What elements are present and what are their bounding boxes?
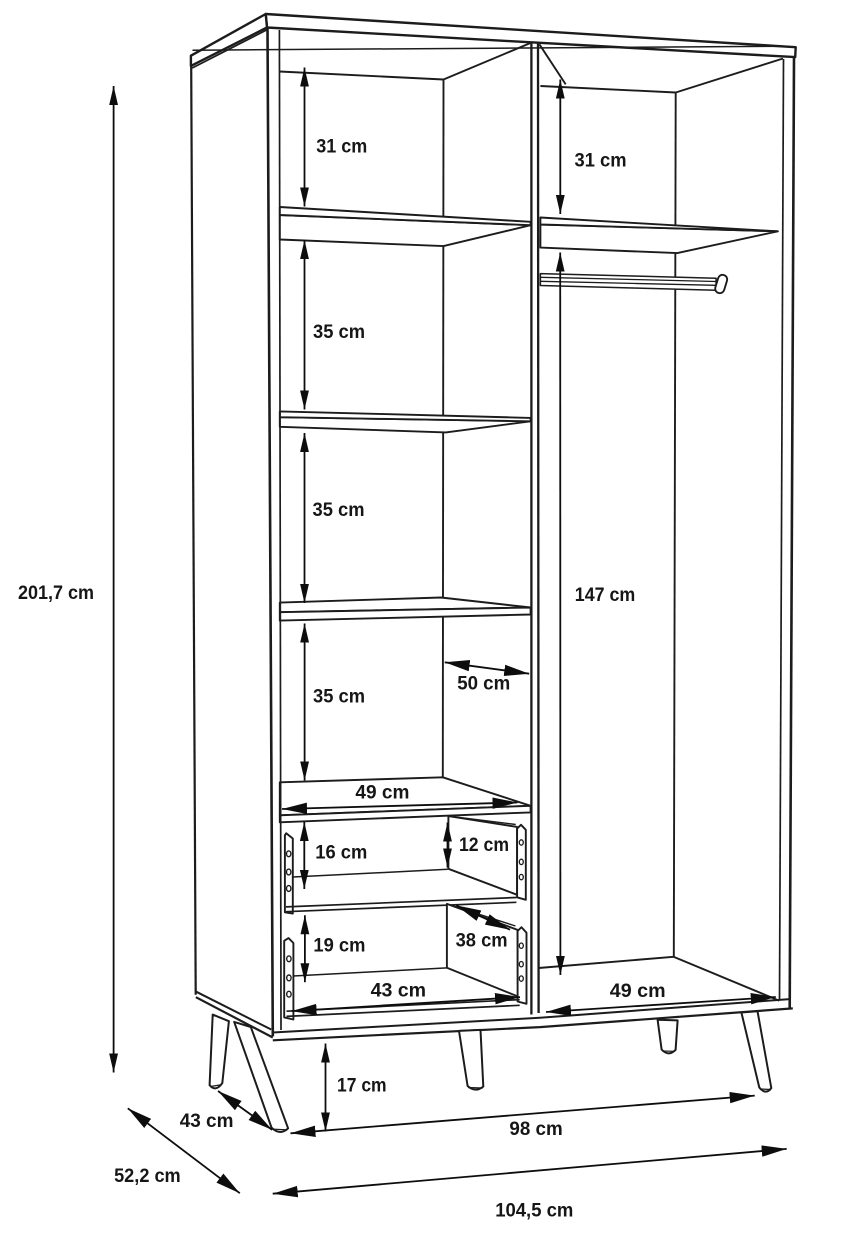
svg-text:35 cm: 35 cm [313, 321, 365, 343]
svg-text:49 cm: 49 cm [355, 782, 409, 804]
svg-text:31 cm: 31 cm [316, 136, 367, 158]
svg-text:98 cm: 98 cm [509, 1118, 562, 1140]
svg-text:104,5 cm: 104,5 cm [495, 1200, 573, 1222]
svg-text:19 cm: 19 cm [313, 935, 365, 957]
svg-text:35 cm: 35 cm [313, 686, 365, 708]
svg-text:12 cm: 12 cm [459, 834, 509, 856]
svg-text:16 cm: 16 cm [315, 842, 367, 864]
svg-text:147 cm: 147 cm [575, 584, 636, 606]
svg-text:35 cm: 35 cm [313, 499, 365, 521]
svg-text:31 cm: 31 cm [575, 150, 627, 172]
svg-text:201,7 cm: 201,7 cm [18, 582, 94, 604]
svg-text:52,2 cm: 52,2 cm [114, 1165, 181, 1187]
svg-text:17 cm: 17 cm [337, 1075, 387, 1097]
svg-text:38 cm: 38 cm [456, 930, 508, 952]
svg-text:43 cm: 43 cm [180, 1110, 234, 1132]
svg-text:49 cm: 49 cm [610, 980, 666, 1002]
svg-text:50 cm: 50 cm [457, 673, 510, 695]
svg-text:43 cm: 43 cm [371, 980, 427, 1002]
